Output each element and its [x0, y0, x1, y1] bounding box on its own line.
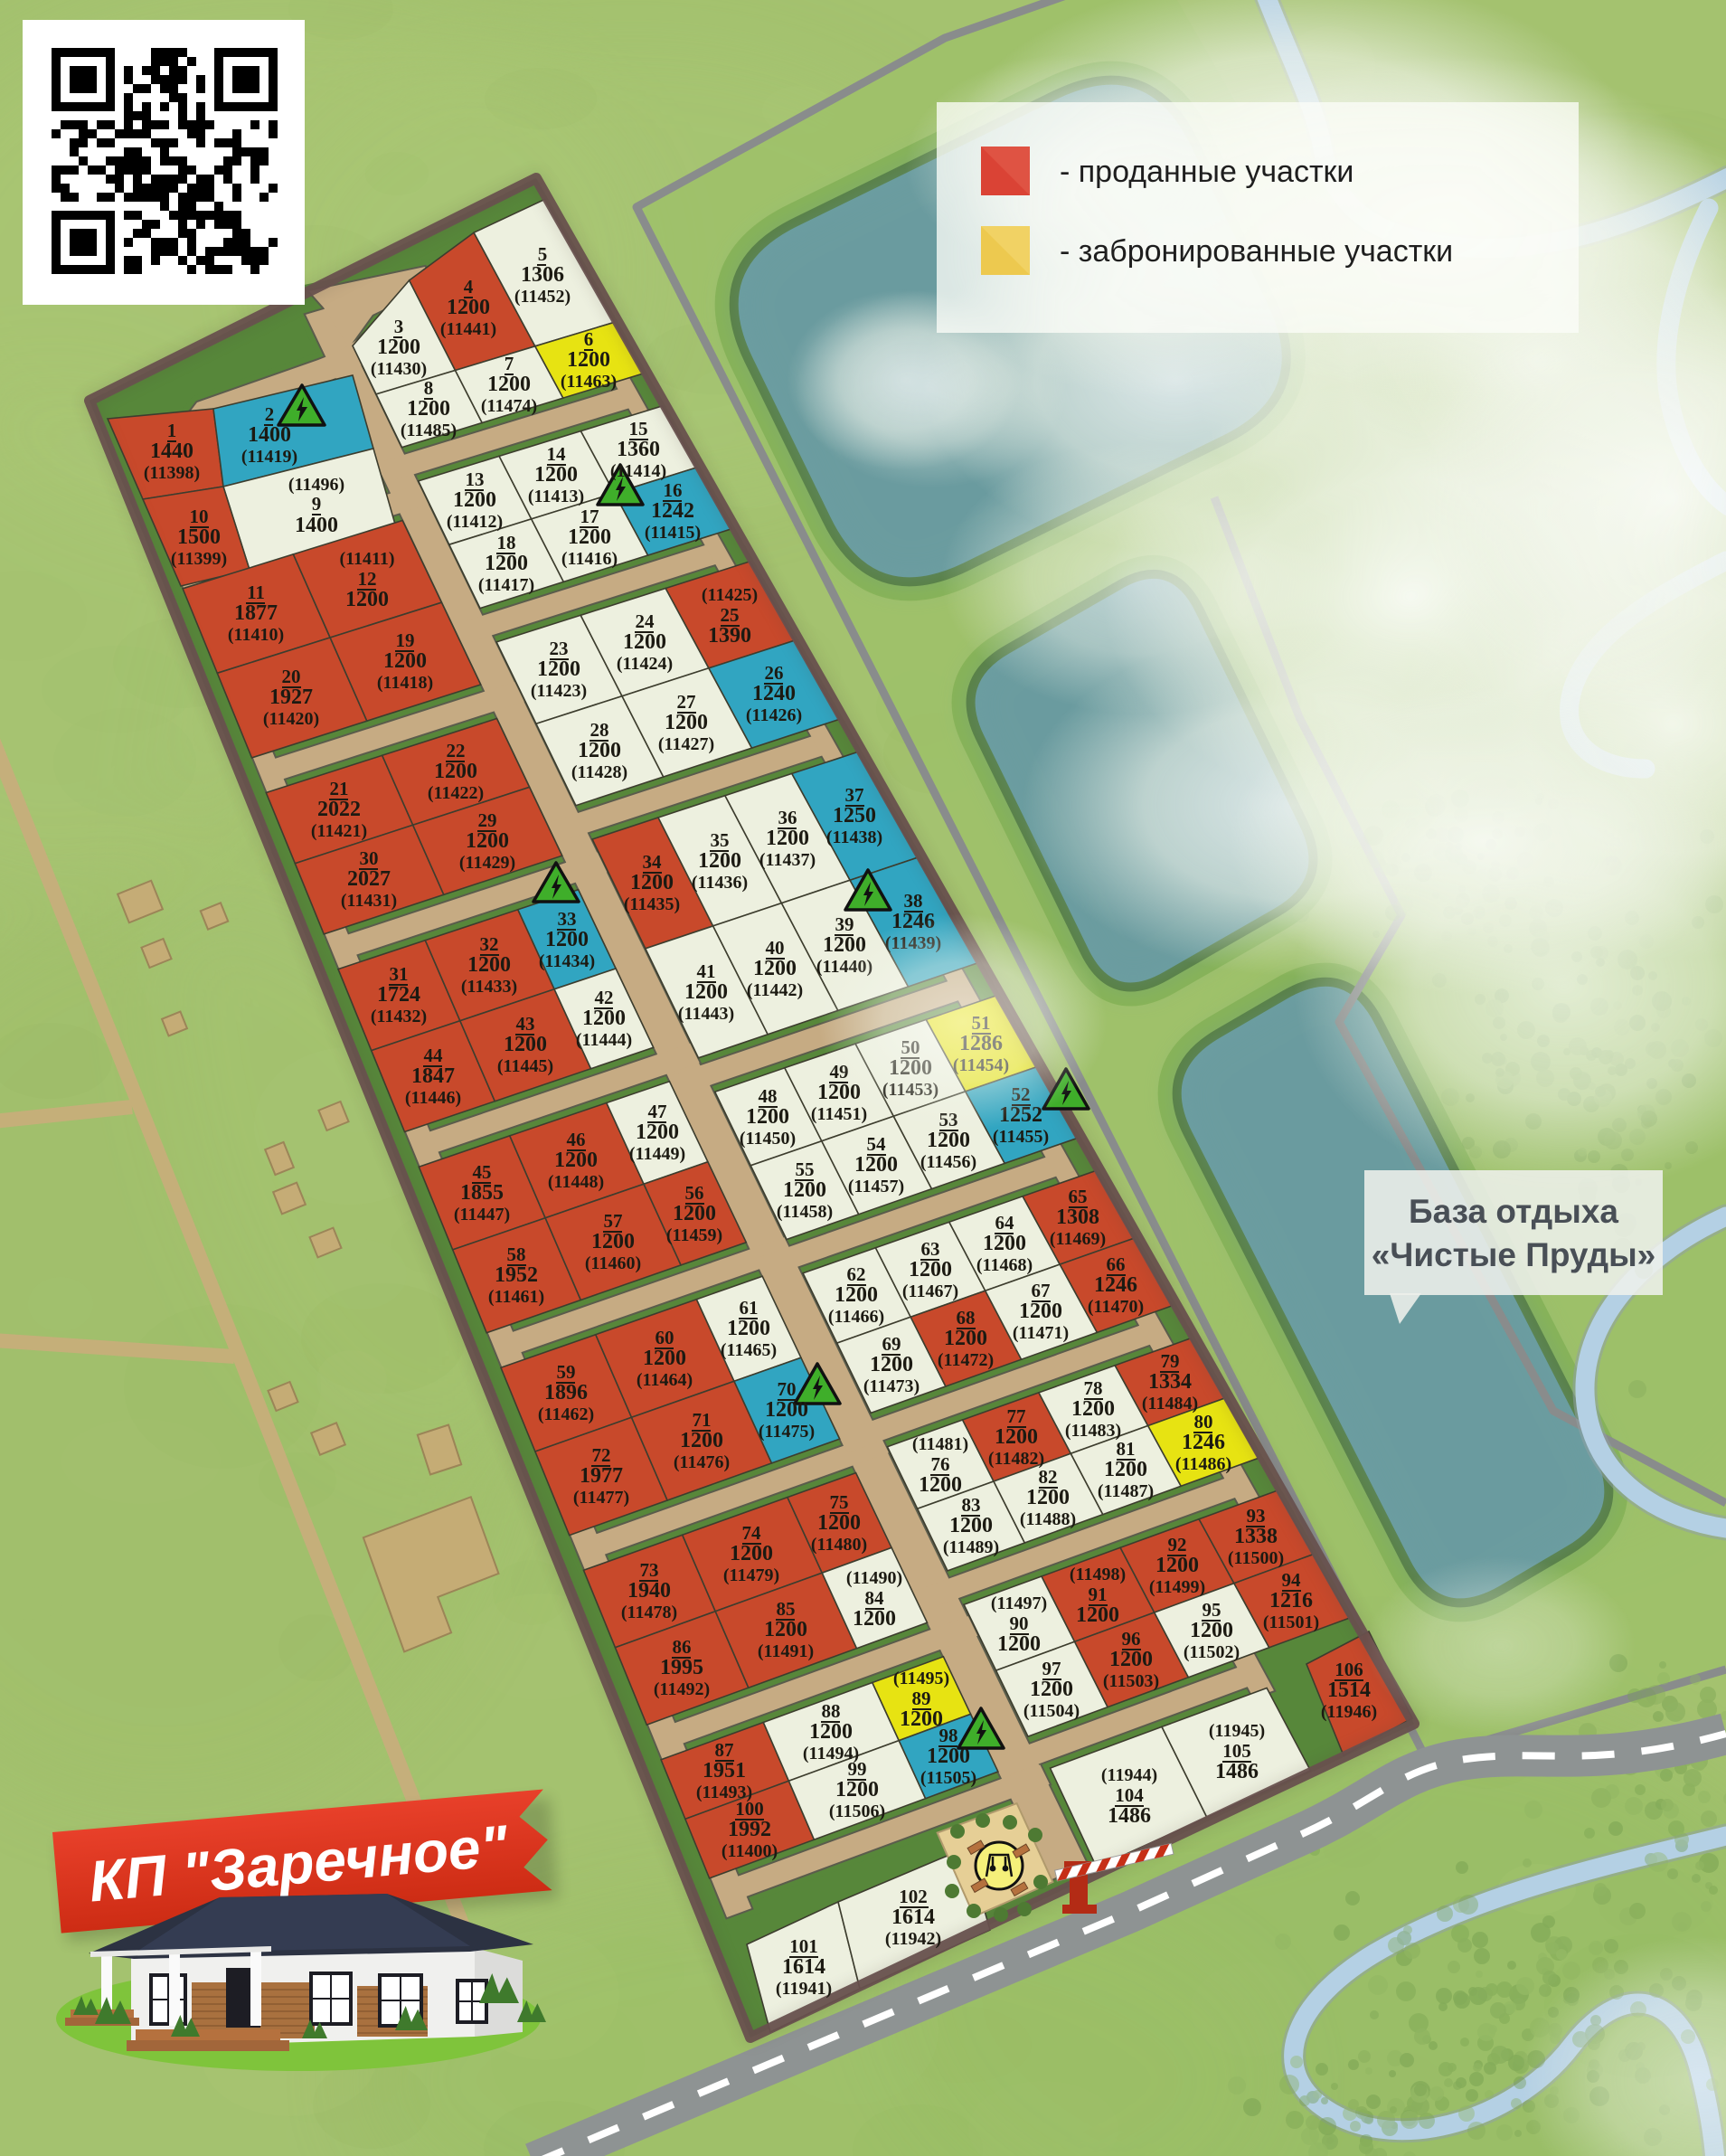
svg-text:(11430): (11430)	[371, 359, 427, 379]
svg-text:1200: 1200	[407, 397, 450, 421]
svg-text:1896: 1896	[544, 1381, 588, 1404]
svg-text:41: 41	[697, 960, 716, 982]
svg-text:11: 11	[247, 582, 265, 603]
svg-text:(11428): (11428)	[571, 762, 627, 782]
svg-text:3: 3	[394, 316, 404, 337]
svg-text:1200: 1200	[765, 1398, 808, 1422]
svg-text:(11466): (11466)	[828, 1307, 884, 1327]
svg-text:1440: 1440	[150, 440, 193, 463]
svg-text:1200: 1200	[537, 657, 580, 681]
svg-text:(11399): (11399)	[171, 549, 227, 569]
svg-text:1246: 1246	[1094, 1273, 1137, 1297]
svg-text:1200: 1200	[377, 336, 420, 359]
svg-text:66: 66	[1107, 1253, 1126, 1275]
svg-text:1200: 1200	[909, 1258, 952, 1281]
svg-text:1200: 1200	[345, 588, 389, 611]
svg-text:39: 39	[835, 913, 854, 935]
svg-text:(11416): (11416)	[561, 549, 618, 569]
svg-text:(11449): (11449)	[629, 1144, 685, 1164]
svg-text:(11434): (11434)	[539, 951, 595, 971]
svg-text:(11490): (11490)	[846, 1568, 902, 1588]
svg-text:56: 56	[685, 1182, 704, 1204]
svg-text:2027: 2027	[347, 867, 391, 891]
svg-text:(11445): (11445)	[497, 1056, 553, 1076]
svg-text:13: 13	[466, 468, 485, 490]
svg-text:2: 2	[265, 403, 275, 425]
svg-text:(11433): (11433)	[461, 977, 517, 997]
svg-text:65: 65	[1069, 1186, 1088, 1207]
svg-text:14: 14	[547, 443, 567, 465]
svg-text:19: 19	[396, 629, 415, 651]
svg-text:(11425): (11425)	[702, 585, 758, 605]
svg-text:(11419): (11419)	[241, 447, 297, 467]
svg-text:1200: 1200	[927, 1129, 970, 1152]
svg-text:(11442): (11442)	[747, 980, 803, 1000]
svg-text:(11422): (11422)	[428, 783, 484, 803]
svg-text:1400: 1400	[295, 514, 338, 537]
svg-text:20: 20	[282, 666, 301, 687]
svg-text:76: 76	[931, 1453, 950, 1475]
svg-text:1486: 1486	[1215, 1760, 1259, 1783]
svg-text:12: 12	[358, 568, 377, 590]
svg-text:(11487): (11487)	[1098, 1481, 1154, 1501]
svg-text:1200: 1200	[554, 1149, 598, 1172]
svg-text:(11504): (11504)	[1023, 1701, 1080, 1721]
svg-text:1200: 1200	[853, 1607, 896, 1631]
svg-text:(11414): (11414)	[610, 461, 666, 481]
svg-text:34: 34	[643, 851, 663, 873]
svg-text:(11444): (11444)	[576, 1030, 632, 1050]
svg-text:1200: 1200	[582, 1007, 626, 1030]
svg-text:1200: 1200	[949, 1514, 993, 1537]
svg-text:(11942): (11942)	[885, 1929, 941, 1949]
svg-text:1200: 1200	[485, 552, 528, 575]
svg-text:64: 64	[995, 1212, 1015, 1234]
svg-text:89: 89	[912, 1688, 931, 1709]
svg-text:(11502): (11502)	[1184, 1642, 1240, 1662]
svg-text:(11506): (11506)	[829, 1801, 885, 1821]
svg-text:1200: 1200	[835, 1778, 879, 1801]
svg-text:1200: 1200	[487, 373, 531, 396]
svg-text:21: 21	[330, 778, 349, 799]
svg-text:44: 44	[424, 1045, 444, 1066]
svg-text:(11488): (11488)	[1020, 1509, 1076, 1529]
svg-text:1250: 1250	[833, 804, 876, 827]
svg-text:1200: 1200	[630, 871, 674, 894]
svg-text:59: 59	[557, 1361, 576, 1383]
svg-text:83: 83	[962, 1494, 981, 1516]
svg-text:(11476): (11476)	[674, 1452, 730, 1472]
svg-text:1200: 1200	[1104, 1458, 1147, 1481]
svg-text:25: 25	[721, 604, 740, 626]
svg-text:1200: 1200	[1019, 1300, 1062, 1323]
svg-text:1: 1	[167, 420, 177, 441]
svg-text:1200: 1200	[534, 463, 578, 487]
svg-text:105: 105	[1222, 1740, 1251, 1762]
svg-text:(11413): (11413)	[528, 487, 584, 506]
svg-text:1390: 1390	[708, 624, 751, 648]
svg-text:74: 74	[742, 1522, 762, 1544]
svg-text:36: 36	[778, 807, 797, 828]
svg-text:1200: 1200	[809, 1720, 853, 1744]
svg-text:1306: 1306	[521, 263, 564, 287]
svg-text:79: 79	[1161, 1350, 1180, 1372]
svg-text:- проданные участки: - проданные участки	[1060, 155, 1353, 189]
svg-text:(11412): (11412)	[447, 512, 503, 532]
svg-text:(11505): (11505)	[920, 1768, 976, 1788]
svg-text:100: 100	[735, 1798, 764, 1820]
svg-text:(11427): (11427)	[658, 734, 714, 754]
svg-text:96: 96	[1122, 1628, 1141, 1650]
svg-text:1200: 1200	[1071, 1397, 1115, 1421]
svg-text:1200: 1200	[1026, 1486, 1070, 1509]
svg-text:75: 75	[830, 1491, 849, 1513]
svg-text:(11455): (11455)	[993, 1127, 1049, 1147]
svg-text:(11446): (11446)	[405, 1088, 461, 1108]
svg-text:(11491): (11491)	[758, 1641, 814, 1661]
svg-text:38: 38	[904, 890, 923, 912]
svg-text:33: 33	[558, 908, 577, 930]
svg-text:1200: 1200	[835, 1283, 878, 1307]
svg-text:1200: 1200	[997, 1632, 1041, 1656]
svg-text:30: 30	[360, 847, 379, 869]
svg-text:1952: 1952	[495, 1263, 538, 1287]
svg-text:91: 91	[1089, 1584, 1108, 1605]
svg-text:(11423): (11423)	[531, 681, 587, 701]
svg-text:8: 8	[424, 377, 434, 399]
svg-text:1614: 1614	[891, 1905, 935, 1929]
svg-text:(11398): (11398)	[144, 463, 200, 483]
svg-text:(11482): (11482)	[988, 1449, 1044, 1469]
svg-text:(11497): (11497)	[991, 1593, 1047, 1613]
svg-text:77: 77	[1007, 1405, 1026, 1427]
svg-text:(11471): (11471)	[1013, 1323, 1069, 1343]
svg-text:104: 104	[1115, 1784, 1144, 1806]
svg-text:92: 92	[1168, 1534, 1187, 1556]
svg-text:88: 88	[822, 1700, 841, 1722]
svg-text:85: 85	[777, 1598, 796, 1620]
svg-text:69: 69	[882, 1333, 901, 1355]
svg-text:1200: 1200	[434, 760, 477, 783]
svg-text:67: 67	[1032, 1280, 1051, 1301]
svg-text:1200: 1200	[466, 829, 509, 853]
svg-text:48: 48	[759, 1085, 778, 1107]
svg-text:(11465): (11465)	[721, 1340, 777, 1360]
svg-text:1200: 1200	[764, 1618, 807, 1641]
svg-text:(11480): (11480)	[811, 1535, 867, 1555]
svg-text:1200: 1200	[1190, 1619, 1233, 1642]
svg-text:1200: 1200	[1109, 1648, 1153, 1671]
svg-text:(11462): (11462)	[538, 1404, 594, 1424]
svg-text:(11467): (11467)	[902, 1281, 958, 1301]
svg-text:(11495): (11495)	[893, 1669, 949, 1688]
svg-text:(11420): (11420)	[263, 709, 319, 729]
svg-text:15: 15	[629, 418, 648, 440]
svg-text:1951: 1951	[703, 1759, 746, 1782]
svg-text:1200: 1200	[623, 630, 666, 654]
svg-text:1500: 1500	[177, 525, 221, 549]
svg-text:1200: 1200	[766, 827, 809, 850]
svg-text:(11432): (11432)	[371, 1007, 427, 1026]
svg-text:(11941): (11941)	[776, 1979, 832, 1999]
svg-text:102: 102	[899, 1886, 928, 1907]
svg-text:97: 97	[1042, 1658, 1061, 1679]
svg-text:6: 6	[584, 328, 594, 350]
svg-text:(11452): (11452)	[514, 287, 571, 307]
svg-text:23: 23	[550, 638, 569, 659]
svg-text:(11411): (11411)	[339, 549, 394, 569]
svg-text:24: 24	[636, 610, 656, 632]
svg-text:(11946): (11946)	[1321, 1702, 1377, 1722]
svg-text:1877: 1877	[234, 601, 278, 625]
svg-text:1200: 1200	[854, 1153, 898, 1177]
svg-text:1242: 1242	[651, 499, 694, 523]
svg-text:1240: 1240	[752, 682, 796, 705]
svg-text:29: 29	[478, 809, 497, 831]
svg-text:(11463): (11463)	[561, 372, 617, 392]
svg-text:1847: 1847	[411, 1064, 455, 1088]
svg-text:База отдыха: База отдыха	[1409, 1193, 1618, 1230]
svg-text:(11415): (11415)	[645, 523, 701, 543]
svg-text:62: 62	[847, 1263, 866, 1285]
svg-text:1200: 1200	[665, 711, 708, 734]
svg-text:63: 63	[921, 1238, 940, 1260]
svg-text:46: 46	[567, 1129, 586, 1150]
svg-text:(11435): (11435)	[624, 894, 680, 914]
svg-text:1200: 1200	[900, 1707, 943, 1731]
svg-text:82: 82	[1039, 1466, 1058, 1488]
svg-text:70: 70	[778, 1378, 797, 1400]
svg-text:7: 7	[505, 353, 514, 374]
svg-text:1614: 1614	[782, 1955, 825, 1979]
svg-text:37: 37	[845, 784, 864, 806]
svg-text:1977: 1977	[580, 1464, 623, 1488]
svg-text:1927: 1927	[269, 686, 313, 709]
svg-text:93: 93	[1247, 1505, 1266, 1527]
svg-text:1200: 1200	[1030, 1678, 1073, 1701]
svg-text:1200: 1200	[684, 980, 728, 1004]
svg-text:72: 72	[592, 1444, 611, 1466]
svg-text:(11438): (11438)	[826, 827, 882, 847]
svg-text:1200: 1200	[817, 1511, 861, 1535]
svg-text:1200: 1200	[680, 1429, 723, 1452]
svg-text:(11484): (11484)	[1142, 1394, 1198, 1414]
svg-text:81: 81	[1117, 1438, 1136, 1460]
svg-text:1308: 1308	[1056, 1206, 1099, 1229]
svg-text:(11477): (11477)	[573, 1488, 629, 1508]
svg-text:73: 73	[640, 1559, 659, 1581]
svg-text:(11437): (11437)	[759, 850, 816, 870]
svg-text:1200: 1200	[727, 1317, 770, 1340]
svg-text:1360: 1360	[617, 438, 660, 461]
svg-text:27: 27	[677, 691, 696, 713]
svg-text:(11450): (11450)	[740, 1129, 796, 1149]
svg-text:1200: 1200	[783, 1178, 826, 1202]
svg-text:(11451): (11451)	[811, 1104, 867, 1124]
svg-text:35: 35	[711, 829, 730, 851]
svg-text:1200: 1200	[636, 1121, 679, 1144]
svg-text:1724: 1724	[377, 983, 420, 1007]
svg-text:47: 47	[648, 1101, 667, 1122]
svg-text:1940: 1940	[627, 1579, 671, 1603]
svg-text:45: 45	[473, 1161, 492, 1183]
svg-text:1200: 1200	[467, 953, 511, 977]
svg-text:60: 60	[656, 1327, 674, 1348]
svg-text:(11475): (11475)	[759, 1422, 815, 1442]
svg-text:(11483): (11483)	[1065, 1421, 1121, 1441]
svg-text:1246: 1246	[1182, 1431, 1225, 1454]
svg-text:1200: 1200	[919, 1473, 962, 1497]
svg-text:1200: 1200	[927, 1745, 970, 1768]
svg-text:1200: 1200	[383, 649, 427, 673]
svg-text:(11474): (11474)	[481, 396, 537, 416]
svg-text:42: 42	[595, 987, 614, 1008]
svg-text:1200: 1200	[730, 1542, 773, 1565]
svg-text:80: 80	[1194, 1411, 1213, 1433]
svg-text:(11456): (11456)	[920, 1152, 976, 1172]
svg-text:18: 18	[497, 532, 516, 553]
svg-text:86: 86	[673, 1636, 692, 1658]
svg-text:(11417): (11417)	[478, 575, 534, 595]
svg-text:58: 58	[507, 1243, 526, 1265]
svg-text:1995: 1995	[660, 1656, 703, 1679]
svg-text:55: 55	[796, 1158, 815, 1180]
svg-text:31: 31	[390, 963, 409, 985]
svg-text:(11944): (11944)	[1101, 1765, 1157, 1785]
svg-text:(11486): (11486)	[1175, 1454, 1231, 1474]
svg-text:1200: 1200	[673, 1202, 716, 1225]
svg-text:1486: 1486	[1108, 1804, 1151, 1828]
svg-text:(11426): (11426)	[746, 705, 802, 725]
svg-text:40: 40	[766, 937, 785, 959]
svg-text:78: 78	[1084, 1377, 1103, 1399]
svg-text:98: 98	[939, 1725, 958, 1746]
svg-text:1200: 1200	[591, 1230, 635, 1253]
svg-text:(11447): (11447)	[454, 1205, 510, 1225]
svg-text:1200: 1200	[1155, 1554, 1199, 1577]
svg-text:1855: 1855	[460, 1181, 504, 1205]
svg-text:(11481): (11481)	[912, 1434, 968, 1454]
svg-text:5: 5	[538, 243, 548, 265]
svg-text:(11424): (11424)	[617, 654, 673, 674]
svg-text:1334: 1334	[1148, 1370, 1192, 1394]
svg-text:68: 68	[957, 1307, 976, 1329]
svg-text:61: 61	[740, 1297, 759, 1319]
svg-text:(11460): (11460)	[585, 1253, 641, 1273]
svg-text:10: 10	[190, 506, 209, 527]
svg-text:1216: 1216	[1269, 1589, 1313, 1612]
svg-text:(11499): (11499)	[1149, 1577, 1205, 1597]
svg-text:(11457): (11457)	[848, 1177, 904, 1196]
svg-text:1514: 1514	[1327, 1678, 1371, 1702]
svg-text:54: 54	[867, 1133, 887, 1155]
svg-text:(11478): (11478)	[621, 1603, 677, 1622]
svg-text:1200: 1200	[746, 1105, 789, 1129]
svg-text:1200: 1200	[578, 739, 621, 762]
svg-text:32: 32	[480, 933, 499, 955]
svg-text:22: 22	[447, 740, 466, 761]
svg-text:1200: 1200	[1076, 1603, 1119, 1627]
svg-text:57: 57	[604, 1210, 623, 1232]
svg-text:(11469): (11469)	[1050, 1229, 1106, 1249]
svg-text:(11501): (11501)	[1263, 1612, 1319, 1632]
svg-text:(11492): (11492)	[654, 1679, 710, 1699]
svg-text:(11470): (11470)	[1088, 1297, 1144, 1317]
svg-text:(11485): (11485)	[401, 421, 457, 440]
svg-text:4: 4	[464, 276, 474, 298]
svg-text:1200: 1200	[504, 1033, 547, 1056]
svg-text:1200: 1200	[983, 1232, 1026, 1255]
svg-text:«Чистые Пруды»: «Чистые Пруды»	[1372, 1236, 1656, 1273]
svg-text:(11945): (11945)	[1209, 1721, 1265, 1741]
svg-text:87: 87	[715, 1739, 734, 1761]
svg-text:(11443): (11443)	[678, 1004, 734, 1024]
svg-text:1200: 1200	[453, 488, 496, 512]
svg-text:(11464): (11464)	[637, 1370, 693, 1390]
svg-text:(11468): (11468)	[976, 1255, 1033, 1275]
svg-text:94: 94	[1282, 1569, 1302, 1591]
svg-text:28: 28	[590, 719, 609, 741]
svg-text:17: 17	[580, 506, 599, 527]
svg-text:2022: 2022	[317, 798, 361, 821]
svg-text:95: 95	[1203, 1599, 1221, 1621]
svg-text:71: 71	[693, 1409, 712, 1431]
svg-text:(11458): (11458)	[777, 1202, 833, 1222]
svg-text:(11436): (11436)	[692, 873, 748, 893]
svg-text:(11500): (11500)	[1228, 1548, 1284, 1568]
svg-text:1200: 1200	[568, 525, 611, 549]
svg-text:(11496): (11496)	[288, 475, 344, 495]
svg-text:(11459): (11459)	[666, 1225, 722, 1245]
svg-text:(11461): (11461)	[488, 1287, 544, 1307]
svg-text:1200: 1200	[567, 348, 610, 372]
svg-text:(11448): (11448)	[548, 1172, 604, 1192]
svg-text:(11441): (11441)	[440, 319, 496, 339]
svg-text:1400: 1400	[248, 423, 291, 447]
svg-text:(11418): (11418)	[377, 673, 433, 693]
svg-text:1200: 1200	[545, 928, 589, 951]
svg-text:99: 99	[848, 1758, 867, 1780]
svg-text:(11489): (11489)	[943, 1537, 999, 1557]
svg-text:84: 84	[865, 1587, 885, 1609]
svg-text:(11479): (11479)	[723, 1565, 779, 1585]
svg-text:1992: 1992	[728, 1818, 771, 1841]
svg-text:1200: 1200	[447, 296, 490, 319]
svg-text:43: 43	[516, 1013, 535, 1035]
svg-text:1200: 1200	[995, 1425, 1038, 1449]
svg-text:16: 16	[664, 479, 683, 501]
svg-text:(11410): (11410)	[228, 625, 284, 645]
svg-text:1200: 1200	[753, 957, 797, 980]
svg-text:101: 101	[789, 1935, 818, 1957]
svg-text:90: 90	[1010, 1612, 1029, 1634]
svg-text:(11431): (11431)	[341, 891, 397, 911]
svg-text:(11473): (11473)	[863, 1376, 920, 1396]
svg-text:1200: 1200	[870, 1353, 913, 1376]
svg-text:1200: 1200	[643, 1347, 686, 1370]
svg-text:(11472): (11472)	[938, 1350, 994, 1370]
svg-text:(11503): (11503)	[1103, 1671, 1159, 1691]
svg-text:9: 9	[312, 493, 322, 515]
svg-text:(11400): (11400)	[722, 1841, 778, 1861]
svg-text:26: 26	[765, 662, 784, 684]
svg-text:1200: 1200	[698, 849, 741, 873]
svg-text:(11421): (11421)	[311, 821, 367, 841]
svg-text:1200: 1200	[944, 1327, 987, 1350]
svg-text:- забронированные участки: - забронированные участки	[1060, 234, 1453, 269]
svg-text:106: 106	[1335, 1659, 1363, 1680]
svg-text:(11429): (11429)	[459, 853, 515, 873]
